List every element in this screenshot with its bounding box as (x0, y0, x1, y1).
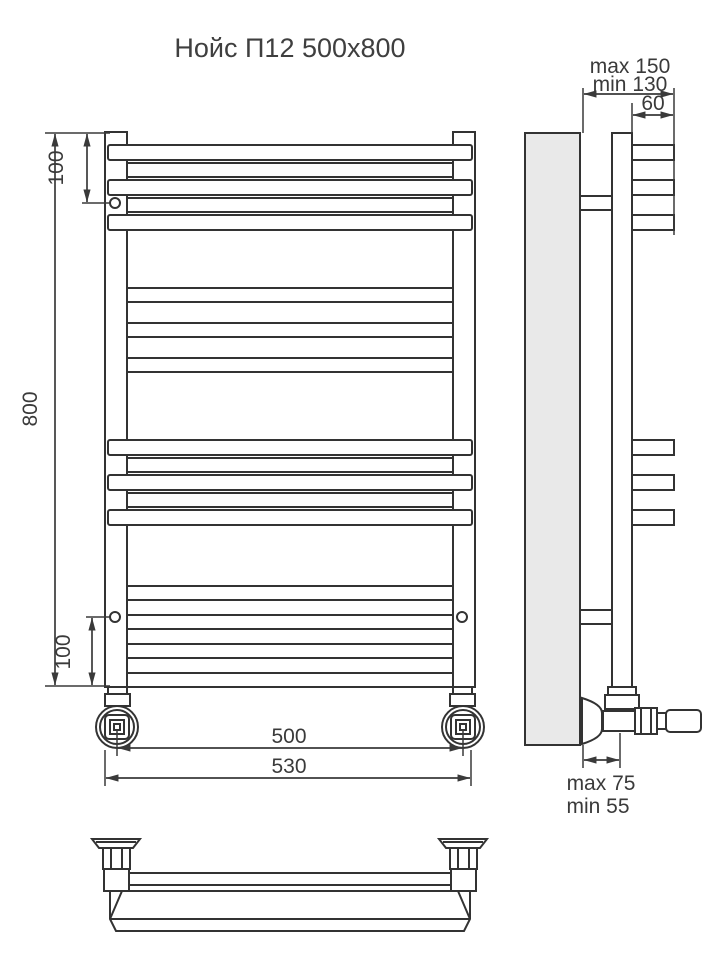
dim-valve-max-label: max 75 (567, 772, 636, 795)
bottom-view (92, 839, 487, 931)
dim-pipe-spacing-label: 500 (271, 725, 306, 748)
dim-overall-width-label: 530 (271, 755, 306, 778)
side-square-rungs (632, 145, 674, 525)
wall-section (525, 133, 580, 745)
bottom-square-bar (110, 891, 470, 931)
wall-escutcheon (582, 698, 602, 744)
towel-rail-drawing: Нойс П12 500x800 (0, 0, 707, 970)
side-valve-assembly (603, 687, 701, 734)
bracket-circle-bottom-right (457, 612, 467, 622)
side-bracket-bottom (580, 610, 612, 624)
drawing-title: Нойс П12 500x800 (174, 33, 405, 63)
dim-offset-top-label: 100 (45, 150, 68, 185)
bottom-round-tube (129, 873, 451, 885)
bracket-circle-bottom-left (110, 612, 120, 622)
dim-offset-bottom-label: 100 (52, 634, 75, 669)
side-riser-tube (612, 133, 632, 687)
dim-valve-min-label: min 55 (566, 795, 629, 818)
drawing-page: Нойс П12 500x800 (0, 0, 707, 970)
dim-rung-depth-label: 60 (641, 92, 664, 115)
bracket-mount-icons (110, 198, 467, 622)
front-view (96, 132, 484, 748)
dim-height-label: 800 (19, 391, 42, 426)
side-bracket-top (580, 196, 612, 210)
bracket-circle-top-left (110, 198, 120, 208)
front-round-rungs (127, 163, 453, 687)
